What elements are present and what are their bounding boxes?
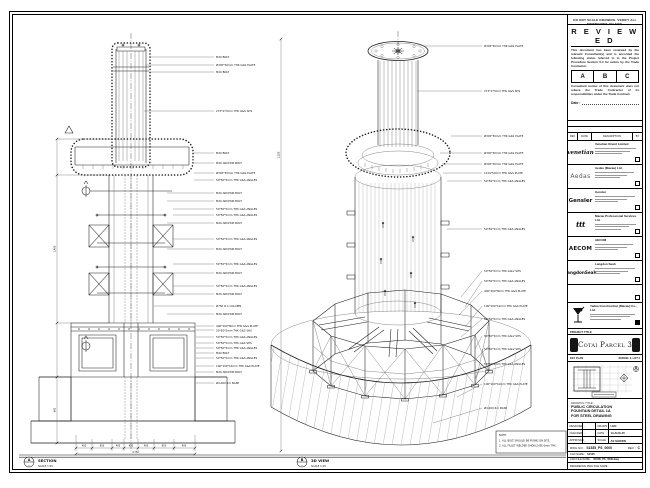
drawing-title-box: DRAWING TITLE : PUBLIC CIRCULATION FOUNT… [568, 399, 642, 423]
consultant-row-empty [568, 285, 642, 303]
address-microtext [595, 273, 620, 274]
project-banner: Cotai Parcel 3 [568, 335, 642, 355]
iso-annotation: 400*200*8mm THK G&S PLATE [484, 289, 526, 293]
notes-box: NOTE: 1. ALL BOLT SHOULD BE FIXING ON SI… [496, 431, 566, 453]
rev-value: C [638, 446, 640, 450]
reference-dwg-row: REFERENCE DWG FILE NAME : [568, 463, 642, 469]
dwg-number-row: DWG NO : S1535_PS_0000 REV : C [568, 444, 642, 452]
address-microtext [595, 247, 627, 248]
dim-value: 400 [182, 445, 187, 448]
address-microtext [595, 175, 627, 176]
address-microtext [590, 314, 635, 315]
consultant-row-aedas: Aedas Aedas (Macau) Ltd. [568, 165, 642, 189]
section-annotation: M20 BOLT [216, 351, 230, 355]
review-stamp-body: This document has been reviewed by the r… [571, 49, 639, 68]
section-annotation: Ø345*50mm THK G&S PLATE [216, 170, 256, 175]
note-line: 1. ALL BOLT SHOULD BE FIXING ON SITE. [499, 439, 550, 443]
consultant-row-gensler: Gensler Gensler [568, 189, 642, 213]
section-annotation: M20 ANCHOR BOLT [216, 247, 242, 251]
address-microtext [595, 201, 618, 202]
review-stamp: R E V I E W E D This document has been r… [568, 25, 642, 121]
aedas-logo: Aedas [568, 165, 593, 188]
iso-annotation: 50*50*5mm THK G&S ANGLES [484, 317, 525, 321]
section-annotation: M20 BOLT [216, 55, 230, 59]
iso-annotations: Ø345*50mm THK G&S PLATE 273*273mm THK G&… [484, 43, 528, 410]
review-option-b[interactable]: B [594, 71, 616, 82]
dim-value: 1,480 [54, 245, 57, 252]
address-microtext [595, 224, 636, 225]
section-annotation: 50*50*5mm THK G&S ANGLES [216, 356, 257, 360]
designed-value: - [583, 423, 596, 430]
scale-label: SCALE [596, 437, 609, 444]
revision-col-date: DATE [578, 133, 592, 140]
iso-annotation: 50*50*5mm THK G&S ANGLES [484, 279, 525, 283]
section-annotation: 50*50*5mm THK G&S ANGLES [216, 237, 257, 241]
section-annotation: Ø750 R.C COLUMN [216, 303, 241, 308]
address-microtext [595, 199, 627, 200]
revision-header-row: REV DATE DESCRIPTION BY [568, 133, 642, 141]
checked-label: CHECKED [568, 430, 583, 437]
venetian-logo: venetian [568, 141, 593, 164]
notes-title: NOTE: [499, 433, 507, 437]
address-microtext [595, 226, 629, 227]
section-annotation: 50*50*5mm THK G&S ANGLES [216, 346, 257, 350]
address-microtext [595, 249, 618, 250]
section-annotation: M20 ANCHOR BOLT [216, 292, 242, 296]
section-dimensions: 400 850 400 450 400 850 400 3,750 1,480 … [54, 151, 281, 454]
section-view-title: SECTION [38, 458, 57, 463]
review-option-c[interactable]: C [617, 71, 638, 82]
dim-value: 660 [54, 407, 57, 412]
dwg-no-value: S1535_PS_0000 [586, 446, 612, 450]
address-microtext [595, 229, 621, 230]
section-annotation: 273*273mm THK G&S SHS [216, 109, 252, 113]
section-annotation: 50*50*5mm THK G&S SHS [216, 329, 252, 333]
consultant-checkbox[interactable] [635, 277, 640, 282]
approved-value: - [583, 437, 596, 444]
consultant-checkbox[interactable] [635, 253, 640, 258]
iso-annotation: 50*50*5mm THK G&S ANGLES [484, 362, 525, 366]
section-view-scale: SCALE 1:25 [38, 464, 53, 468]
key-plan-section: KEY PLAN PARCEL 3, LOT 2 [568, 355, 642, 399]
dwg-no-label: DWG NO : [570, 446, 584, 450]
section-annotation: M20 ANCHOR BOLT [216, 312, 242, 316]
revision-col-rev: REV [568, 133, 578, 140]
consultant-row-macau-professional: ttt Macau Professional Services Ltd. [568, 213, 642, 237]
cad-file-value: S1535_PS_0000.dwg [593, 458, 619, 461]
view-title-strip: A - SECTION SCALE 1:25 B - 3D VIEW SCALE… [19, 455, 566, 468]
top-note: DO NOT SCALE DRAWING. VERIFY ALL DIMENSI… [568, 15, 642, 25]
date-label: DATE [596, 430, 609, 437]
section-annotation: 50*50*5mm THK G&S ANGLES [216, 213, 257, 217]
cad-name-value: S1535 [587, 453, 595, 456]
section-annotation: 50*50*5mm THK G&S ANGLES [216, 335, 257, 339]
review-status-options: A B C [571, 70, 639, 83]
dim-total: 3,750 [132, 451, 139, 454]
section-annotation: Ø345*50mm THK G&S PLATE [216, 62, 256, 67]
iso-annotation: 273*273mm THK G&S SHS [484, 89, 520, 93]
approved-label: APPROVED [568, 437, 583, 444]
iso-view-scale: SCALE 1:25 [311, 464, 326, 468]
reference-dwg-label: REFERENCE DWG FILE NAME : [570, 465, 609, 468]
rev-label: REV : [628, 446, 636, 450]
cad-file-label: CAD FILE NAME : [570, 458, 591, 461]
iso-view-title: 3D VIEW [311, 458, 330, 463]
aecom-logo: AECOM [568, 237, 593, 260]
consultant-name: Aedas (Macau) Ltd. [595, 167, 640, 171]
address-microtext [590, 319, 621, 320]
sheet-inner-border: M20 BOLT Ø345*50mm THK G&S PLATE M20 BOL… [12, 14, 643, 470]
consultant-row-langdon-seah: LangdonSeah Langdon Seah [568, 261, 642, 285]
revision-col-by: BY [633, 133, 642, 140]
review-date-line[interactable] [582, 100, 639, 105]
section-annotation: 400*200*8mm THK G&S PLATE [216, 324, 258, 328]
dim-value: 400 [116, 445, 121, 448]
designed-label: DESIGNED [568, 423, 583, 430]
iso-annotation: 50*50*5mm THK G&S ANGLES [484, 179, 525, 183]
note-line: 2. ALL FILLET WELDED SHOULD BE 6mm THK. [499, 444, 557, 448]
consultant-name: AECOM [595, 239, 640, 243]
dim-value: 850 [100, 445, 105, 448]
drawing-sheet-page: M20 BOLT Ø345*50mm THK G&S PLATE M20 BOL… [0, 0, 650, 488]
dim-value: 2,280 [278, 151, 281, 158]
dim-value: 400 [144, 445, 149, 448]
iso-bubble: B [301, 458, 304, 462]
contractor-logo-icon [568, 303, 588, 328]
section-annotation: M20 BOLT [216, 70, 230, 74]
drawing-title-line: FOR STEEL DRAWING [571, 414, 639, 419]
address-microtext [595, 151, 630, 152]
consultant-row-aecom: AECOM AECOM [568, 237, 642, 261]
checked-value: - [583, 430, 596, 437]
address-microtext [595, 196, 635, 197]
section-annotation: M20 ANCHOR BOLT [216, 161, 242, 165]
contractor-stamp-square [635, 320, 640, 325]
consultant-checkbox[interactable] [635, 205, 640, 210]
review-stamp-title: R E V I E W E D [571, 27, 639, 47]
section-annotation: M20 ANCHOR BOLT [216, 191, 242, 195]
address-microtext [595, 177, 620, 178]
consultant-checkbox[interactable] [635, 229, 640, 234]
drawn-label: DRAWN [596, 423, 609, 430]
iso-annotation: 1219*50mm THK G&S PLATE [484, 171, 523, 175]
iso-annotation: 50*50*5mm THK GALV SHS [484, 334, 521, 338]
section-annotation: 50*50*5mm THK G&S ANGLES [216, 284, 257, 288]
review-date-row: Date : [571, 100, 639, 105]
iso-annotation: Ø345*50mm THK G&S PLATE [484, 150, 524, 155]
consultant-name: Venetian Orient Limited [595, 143, 640, 147]
section-annotation: 50*50*5mm THK G&S ANGLES [216, 178, 257, 182]
review-option-a[interactable]: A [572, 71, 594, 82]
section-view-drawing [31, 33, 282, 455]
section-annotation: 50*50*5mm THK G&S SHS [216, 341, 252, 345]
iso-annotation: 50*50*5mm THK G&S ANGLES [484, 227, 525, 231]
mps-logo: ttt [568, 213, 593, 236]
key-plan-map[interactable] [568, 362, 641, 398]
address-microtext [595, 244, 633, 245]
section-annotation: M20 ANCHOR BOLT [216, 271, 242, 275]
address-microtext [595, 172, 634, 173]
dim-value: 400 [82, 445, 87, 448]
section-annotation: 100*100*10mm THK G&S PLATE [216, 364, 260, 368]
section-annotation: M20 BOLT [216, 151, 230, 155]
langdon-seah-logo: LangdonSeah [568, 261, 593, 284]
drawn-value: LHO [609, 423, 642, 430]
section-annotation: M20 ANCHOR BOLT [216, 370, 242, 374]
dim-value: 850 [162, 445, 167, 448]
address-microtext [590, 316, 630, 317]
consultant-name: Gensler [595, 191, 640, 195]
iso-annotation: 100*100*10mm THK G&S PLATE [484, 304, 528, 308]
info-table: DESIGNED - DRAWN LHO CHECKED - DATE 14-A… [568, 423, 642, 444]
iso-annotation: 100*100*10mm THK G&S PLATE [484, 382, 528, 386]
consultant-row-venetian: venetian Venetian Orient Limited [568, 141, 642, 165]
gensler-logo: Gensler [568, 189, 593, 212]
iso-annotation: Ø345*50mm THK G&S PLATE [484, 161, 524, 166]
key-plan-label: KEY PLAN [570, 357, 583, 360]
address-microtext [595, 268, 635, 269]
consultant-checkbox[interactable] [635, 181, 640, 186]
consultant-checkbox[interactable] [635, 295, 640, 300]
scale-value: AS SHOWN [609, 437, 642, 444]
dim-value: 450 [129, 445, 134, 448]
section-annotation: Ø4,000 R.C BASE [216, 380, 239, 385]
consultant-name: Macau Professional Services Ltd. [595, 215, 640, 222]
revision-col-description: DESCRIPTION [592, 133, 633, 140]
title-block: DO NOT SCALE DRAWING. VERIFY ALL DIMENSI… [567, 15, 642, 469]
address-microtext [595, 148, 636, 149]
contractor-name: Yadea Construction (Macau) Co., Ltd. [590, 305, 640, 312]
section-annotations: M20 BOLT Ø345*50mm THK G&S PLATE M20 BOL… [216, 55, 260, 385]
key-plan-right-label: PARCEL 3, LOT 2 [619, 357, 640, 360]
section-annotation: 50*50*5mm THK G&S ANGLES [216, 262, 257, 266]
consultant-checkbox[interactable] [635, 157, 640, 162]
address-microtext [595, 153, 622, 154]
banner-ornament-icon [570, 338, 578, 352]
project-title: Cotai Parcel 3 [578, 341, 632, 349]
review-date-label: Date : [571, 101, 580, 105]
banner-ornament-icon [632, 338, 640, 352]
iso-annotation: 50*50*5mm THK GALV SHS [484, 347, 521, 351]
section-annotation: 50*50*5mm THK G&S ANGLES [216, 207, 257, 211]
iso-annotation: Ø4,000 R.C BASE [484, 405, 507, 410]
iso-annotation: Ø345*50mm THK G&S PLATE [484, 133, 524, 138]
cad-name-label: CAD NAME : [570, 453, 585, 456]
consultant-name: Langdon Seah [595, 263, 640, 267]
review-stamp-body2: Consultant review of this document does … [571, 85, 639, 97]
iso-annotation: Ø345*50mm THK G&S PLATE [484, 43, 524, 48]
address-microtext [595, 271, 628, 272]
contractor-row: Yadea Construction (Macau) Co., Ltd. [568, 303, 642, 329]
section-bubble: A [28, 458, 31, 462]
date-value: 14-AUG-15 [609, 430, 642, 437]
section-annotation: M20 ANCHOR BOLT [216, 199, 242, 203]
sheet-outer-border: M20 BOLT Ø345*50mm THK G&S PLATE M20 BOL… [9, 11, 646, 473]
section-annotation: M20 ANCHOR BOLT [216, 221, 242, 225]
iso-annotation: 50*50*5mm THK GALV SHS [484, 269, 521, 273]
drawing-area: M20 BOLT Ø345*50mm THK G&S PLATE M20 BOL… [13, 15, 567, 469]
